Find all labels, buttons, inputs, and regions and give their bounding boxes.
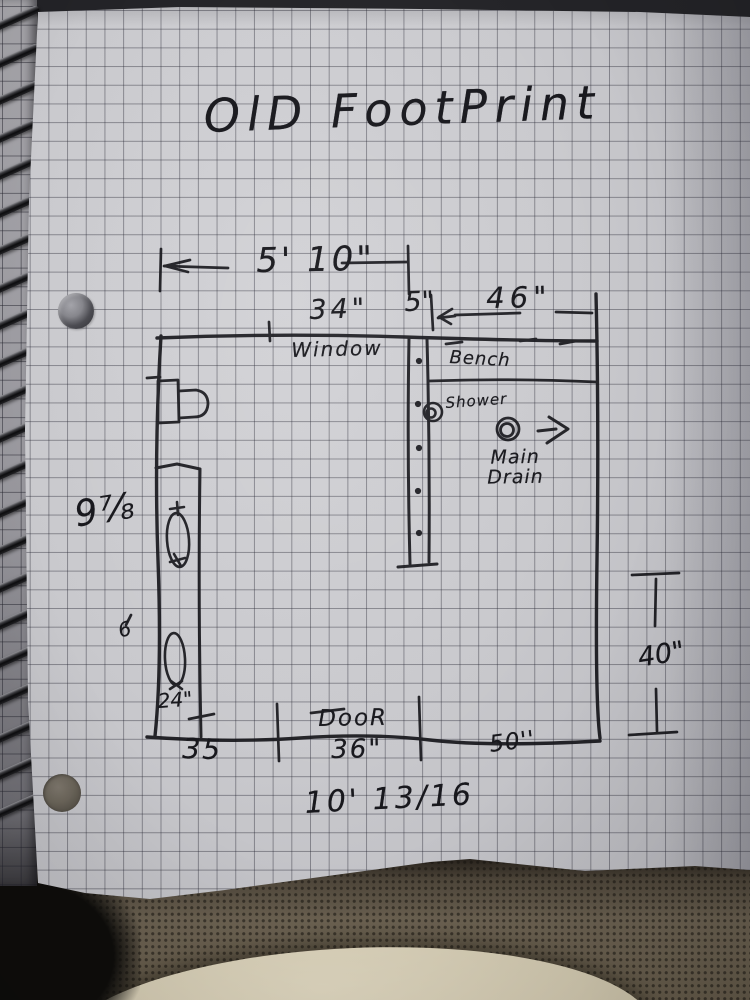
dim-door-label: 36" (331, 736, 383, 764)
window-label: Window (291, 338, 383, 361)
dim-window-label: 34" (309, 295, 369, 325)
dim-chase-width-label: 24" (157, 689, 193, 712)
dim-left-side-label: 9⅞ (72, 487, 139, 534)
dim-top-width-label: 5' 10" (256, 242, 375, 280)
drain-arrow (538, 417, 568, 443)
sketch-title: OlD FootPrint (203, 78, 602, 140)
main-drain-label: Main Drain (469, 447, 562, 488)
room-walls (147, 294, 600, 744)
dim-bottom-left-label: 35 (182, 734, 223, 765)
bench-label: Bench (449, 349, 511, 371)
dim-total-width-label: 10' 13/16 (304, 779, 475, 819)
dim-bottom-right-label: 50'' (488, 727, 537, 757)
photo-of-notebook-sketch: OlD FootPrint 5' 10" 34" 5" 46" Window B… (0, 0, 750, 1000)
dim-wall-thickness-label: 5" (404, 288, 435, 317)
main-drain-symbol (497, 418, 519, 440)
door-label: DooR (318, 706, 388, 731)
chase-fixture-ovals (164, 502, 191, 689)
dim-right-top-label: 46" (486, 282, 552, 314)
interior-wall (398, 338, 437, 567)
shower-drain-symbol (424, 403, 442, 421)
